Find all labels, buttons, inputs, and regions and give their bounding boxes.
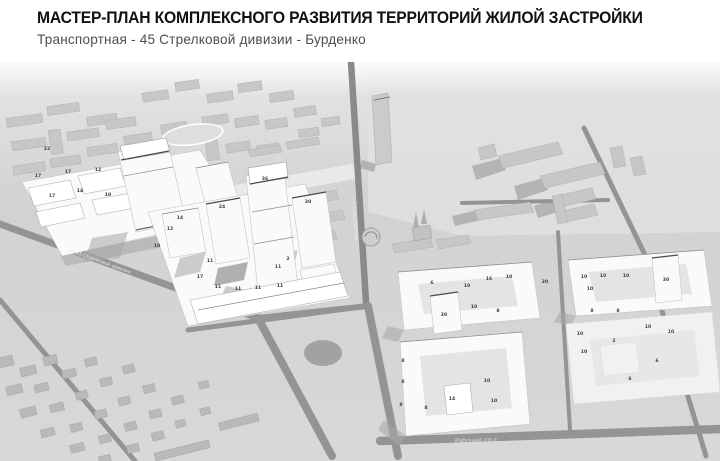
building-number: 11 — [277, 283, 283, 289]
building-number: 8 — [401, 379, 404, 385]
building-number: 8 — [616, 308, 619, 314]
building-number: 2 — [286, 256, 289, 262]
building-number: 12 — [95, 167, 101, 173]
building-number: 14 — [449, 396, 455, 402]
building-number: 30 — [663, 277, 669, 283]
building-number: 8 — [496, 308, 499, 314]
building-number: 10 — [587, 286, 593, 292]
building-number: 8 — [401, 358, 404, 364]
building-number: 10 — [600, 273, 606, 279]
masterplan-render: ул. 45 Стрелковой дивизии ул. Транспортн… — [0, 0, 720, 461]
building-number: 6 — [430, 280, 433, 286]
street-label-rabochiy: Рабочий пр-т — [455, 436, 498, 445]
building-number: 36 — [262, 176, 268, 182]
building-number: 22 — [44, 146, 50, 152]
roundabout-island — [304, 340, 342, 366]
building-number: 10 — [491, 398, 497, 404]
building-number: 10 — [471, 304, 477, 310]
building-number: 10 — [577, 331, 583, 337]
building-number: 30 — [305, 199, 311, 205]
slide-header: МАСТЕР-ПЛАН КОМПЛЕКСНОГО РАЗВИТИЯ ТЕРРИТ… — [0, 0, 720, 62]
horizon-fade — [0, 62, 720, 96]
building-number: 17 — [197, 274, 203, 280]
building-number: 10 — [668, 329, 674, 335]
building-number: 8 — [424, 405, 427, 411]
building-number: 11 — [235, 286, 241, 292]
building-number: 10 — [581, 274, 587, 280]
masterplan-slide: МАСТЕР-ПЛАН КОМПЛЕКСНОГО РАЗВИТИЯ ТЕРРИТ… — [0, 0, 720, 461]
building-number: 6 — [655, 358, 658, 364]
building-number: 10 — [581, 349, 587, 355]
building-number: 10 — [645, 324, 651, 330]
circus-building — [362, 228, 380, 246]
building-number: 24 — [219, 204, 225, 210]
building-number: 17 — [65, 169, 71, 175]
building-number: 2 — [612, 338, 615, 344]
building-number: 17 — [35, 173, 41, 179]
building-number: 14 — [177, 215, 183, 221]
building-number: 12 — [167, 226, 173, 232]
building-number: 11 — [215, 284, 221, 290]
building-number: 8 — [399, 402, 402, 408]
page-subtitle: Транспортная - 45 Стрелковой дивизии - Б… — [37, 31, 366, 47]
east-blocks — [554, 250, 720, 404]
building-number: 20 — [542, 279, 548, 285]
building-number: 6 — [628, 376, 631, 382]
building-number: 11 — [275, 264, 281, 270]
building-number: 17 — [49, 193, 55, 199]
building-number: 10 — [484, 378, 490, 384]
page-title: МАСТЕР-ПЛАН КОМПЛЕКСНОГО РАЗВИТИЯ ТЕРРИТ… — [37, 9, 643, 28]
building-number: 10 — [623, 273, 629, 279]
building-number: 11 — [207, 258, 213, 264]
building-number: 30 — [441, 312, 447, 318]
building-number: 10 — [105, 192, 111, 198]
building-number: 10 — [464, 283, 470, 289]
building-number: 11 — [255, 285, 261, 291]
building-number: 14 — [77, 188, 83, 194]
building-number: 10 — [506, 274, 512, 280]
building-number: 8 — [590, 308, 593, 314]
building-number: 10 — [154, 243, 160, 249]
building-number: 16 — [486, 276, 492, 282]
